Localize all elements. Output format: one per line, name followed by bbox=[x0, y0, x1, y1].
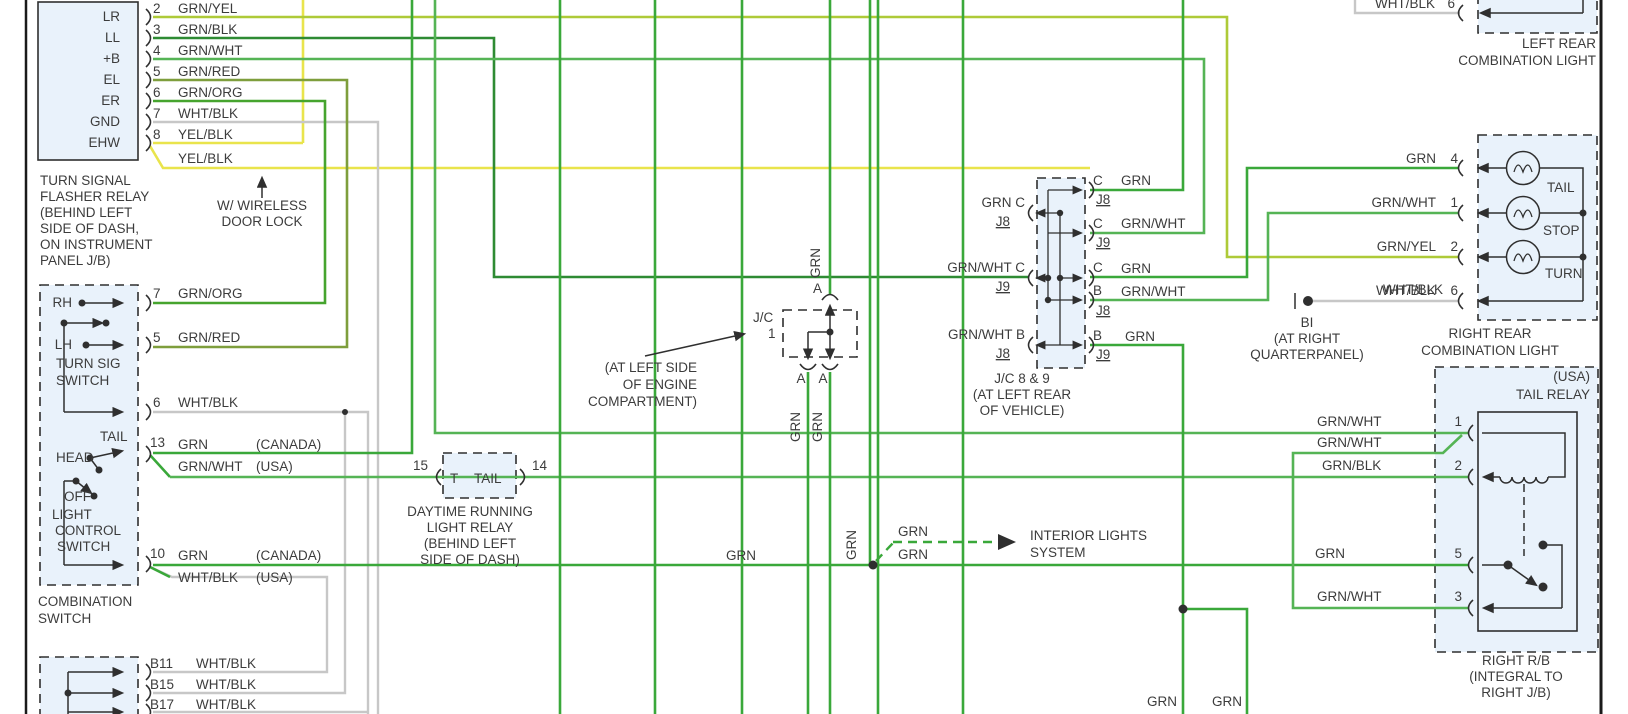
wire-grn-yel-turn bbox=[153, 17, 1458, 257]
junction-dot bbox=[1179, 605, 1188, 614]
daytime-running-light-relay-label: 14 bbox=[532, 458, 548, 473]
daytime-running-light-relay-label: LIGHT RELAY bbox=[427, 520, 514, 535]
combination-switch-label: COMBINATION bbox=[38, 594, 132, 609]
jc1-pointer-arrow-icon bbox=[645, 334, 744, 356]
interior-lights-system-label: GRN bbox=[1212, 694, 1242, 709]
turn-signal-flasher-relay-label: GRN/ORG bbox=[178, 85, 243, 100]
turn-signal-flasher-relay-label: ON INSTRUMENT bbox=[40, 237, 153, 252]
right-rear-combination-light-label: 6 bbox=[1450, 283, 1458, 298]
turn-signal-flasher-relay-label: GND bbox=[90, 114, 120, 129]
turn-signal-flasher-relay-label: YEL/BLK bbox=[178, 127, 233, 142]
turn-signal-flasher-relay-label: GRN/YEL bbox=[178, 1, 238, 16]
tail-relay-label: RIGHT R/B bbox=[1482, 653, 1550, 668]
right-rear-combination-light-label: 1 bbox=[1450, 195, 1458, 210]
instrument-panel-connector-label: WHT/BLK bbox=[196, 697, 256, 712]
combination-switch-label: SWITCH bbox=[38, 611, 91, 626]
daytime-running-light-relay-label: 15 bbox=[413, 458, 428, 473]
combination-switch-label: CONTROL bbox=[55, 523, 121, 538]
junction-connector-1-label: 1 bbox=[768, 326, 776, 341]
turn-signal-flasher-relay-label: YEL/BLK bbox=[178, 151, 233, 166]
turn-signal-flasher-relay-label: LR bbox=[103, 9, 121, 24]
junction-connector-1-label: OF ENGINE bbox=[623, 377, 697, 392]
turn-signal-flasher-relay-label: TURN SIGNAL bbox=[40, 173, 131, 188]
right-rear-combination-light-label: WHT/BLK bbox=[1376, 283, 1436, 298]
right-rear-combination-light-label: RIGHT REAR bbox=[1448, 326, 1531, 341]
tail-relay-label: 3 bbox=[1454, 589, 1462, 604]
tail-relay-label: 5 bbox=[1454, 546, 1462, 561]
junction-connector-1-label: GRN bbox=[810, 412, 825, 442]
daytime-running-light-relay-label: DAYTIME RUNNING bbox=[407, 504, 533, 519]
junction-connector-1-label: GRN bbox=[788, 412, 803, 442]
wire-yel-blk bbox=[150, 0, 1090, 168]
junction-dot bbox=[342, 409, 348, 415]
junction-connector-8-9-label: GRN/WHT B bbox=[948, 327, 1025, 342]
junction-connector-1-label: J/C bbox=[753, 310, 774, 325]
turn-signal-flasher-relay-label: 7 bbox=[153, 106, 161, 121]
turn-signal-flasher-relay-label: 2 bbox=[153, 1, 161, 16]
junction-connector-8-9-label: GRN/WHT C bbox=[947, 260, 1025, 275]
combination-switch-label: 6 bbox=[153, 395, 161, 410]
junction-connector-8-9-label: GRN/WHT bbox=[1121, 216, 1186, 231]
junction-connector-1-label: GRN bbox=[808, 248, 823, 278]
combination-switch-label: SWITCH bbox=[57, 539, 110, 554]
right-rear-combination-light-label: GRN/WHT bbox=[1372, 195, 1437, 210]
tail-relay-label: GRN/WHT bbox=[1317, 589, 1382, 604]
ground-bi-label: BI bbox=[1301, 315, 1314, 330]
interior-lights-system-label: SYSTEM bbox=[1030, 545, 1086, 560]
left-rear-combination-light-label: 6 bbox=[1447, 0, 1455, 11]
turn-signal-flasher-relay-label: 6 bbox=[153, 85, 161, 100]
combination-switch-label: (CANADA) bbox=[256, 437, 321, 452]
instrument-panel-connector-label: B11 bbox=[150, 656, 173, 671]
wiring-diagram: LRLL+BELERGNDEHW2GRN/YEL3GRN/BLK4GRN/WHT… bbox=[0, 0, 1628, 714]
wire-grn-wht-relay-pin1 bbox=[435, 0, 1468, 433]
junction-dot bbox=[869, 561, 878, 570]
combination-switch-label: GRN bbox=[178, 437, 208, 452]
junction-connector-8-9-label: J9 bbox=[1096, 235, 1110, 250]
combination-switch-label: GRN bbox=[178, 548, 208, 563]
combination-switch-label: WHT/BLK bbox=[178, 570, 238, 585]
combination-switch-label: OFF bbox=[64, 489, 91, 504]
junction-connector-8-9-label: GRN/WHT bbox=[1121, 284, 1186, 299]
right-rear-combination-light-label: GRN/YEL bbox=[1377, 239, 1437, 254]
junction-connector-8-9-label: GRN bbox=[1125, 329, 1155, 344]
interior-lights-system-label: INTERIOR LIGHTS bbox=[1030, 528, 1147, 543]
right-rear-combination-light-label: 2 bbox=[1450, 239, 1458, 254]
daytime-running-light-relay-label: TAIL bbox=[474, 471, 502, 486]
interior-lights-system-label: GRN bbox=[844, 530, 859, 560]
interior-lights-system-label: GRN bbox=[898, 547, 928, 562]
left-rear-combination-light-label: LEFT REAR bbox=[1522, 36, 1596, 51]
combination-switch-label: 10 bbox=[150, 546, 165, 561]
turn-signal-flasher-relay-label: (BEHIND LEFT bbox=[40, 205, 132, 220]
instrument-panel-connector-label: WHT/BLK bbox=[196, 656, 256, 671]
junction-connector-8-9-label: J8 bbox=[996, 346, 1010, 361]
junction-connector-8-9-label: B bbox=[1093, 328, 1102, 343]
junction-connector-1-label: (AT LEFT SIDE bbox=[605, 360, 697, 375]
junction-connector-8-9-label: J8 bbox=[996, 214, 1010, 229]
right-rear-combination-light-label: TURN bbox=[1545, 266, 1583, 281]
junction-connector-8-9-label: J8 bbox=[1096, 192, 1110, 207]
tail-relay-label: GRN/BLK bbox=[1322, 458, 1381, 473]
right-rear-combination-light-label: 4 bbox=[1450, 151, 1458, 166]
junction-connector-8-9-box bbox=[1037, 178, 1085, 368]
junction-connector-1-label: COMPARTMENT) bbox=[588, 394, 697, 409]
combination-switch-label: LIGHT bbox=[52, 507, 92, 522]
tail-relay-label: 1 bbox=[1454, 414, 1462, 429]
junction-connector-8-9-label: J9 bbox=[1096, 347, 1110, 362]
tail-relay-label: GRN/WHT bbox=[1317, 435, 1382, 450]
turn-signal-flasher-relay-label: W/ WIRELESS bbox=[217, 198, 307, 213]
turn-signal-flasher-relay-label: GRN/RED bbox=[178, 64, 241, 79]
combination-switch-label: 7 bbox=[153, 286, 161, 301]
tail-relay-label: (USA) bbox=[1553, 369, 1590, 384]
combination-switch-label: RH bbox=[53, 295, 73, 310]
turn-signal-flasher-relay-label: +B bbox=[103, 51, 120, 66]
turn-signal-flasher-relay-label: GRN/BLK bbox=[178, 22, 237, 37]
instrument-panel-connector-box bbox=[40, 657, 138, 714]
tail-relay-label: 2 bbox=[1454, 458, 1462, 473]
tail-relay-label: RIGHT J/B) bbox=[1481, 685, 1551, 700]
turn-signal-flasher-relay-label: LL bbox=[105, 30, 121, 45]
tail-relay-label: TAIL RELAY bbox=[1516, 387, 1590, 402]
right-rear-combination-light-label: TAIL bbox=[1547, 180, 1575, 195]
turn-signal-flasher-relay-label: EHW bbox=[89, 135, 121, 150]
turn-signal-flasher-relay-label: WHT/BLK bbox=[178, 106, 238, 121]
wire-grn-blk bbox=[153, 38, 1028, 277]
combination-switch-label: 5 bbox=[153, 330, 161, 345]
junction-connector-8-9-label: C bbox=[1093, 173, 1103, 188]
wire-grn-verticals bbox=[560, 0, 963, 714]
ground-bi-label: QUARTERPANEL) bbox=[1250, 347, 1364, 362]
interior-lights-system-label: GRN bbox=[726, 548, 756, 563]
instrument-panel-connector-label: B15 bbox=[150, 677, 174, 692]
junction-connector-1-label: A bbox=[796, 371, 805, 386]
turn-signal-flasher-relay-label: DOOR LOCK bbox=[221, 214, 302, 229]
tail-relay-label: GRN bbox=[1315, 546, 1345, 561]
junction-connector-8-9-label: C bbox=[1093, 216, 1103, 231]
turn-signal-flasher-relay-label: 4 bbox=[153, 43, 161, 58]
combination-switch-label: (CANADA) bbox=[256, 548, 321, 563]
combination-switch-label: HEAD bbox=[56, 450, 94, 465]
instrument-panel-connector-label: B17 bbox=[150, 697, 174, 712]
combination-switch-label: 13 bbox=[150, 435, 165, 450]
junction-connector-8-9-label: GRN C bbox=[982, 195, 1026, 210]
turn-signal-flasher-relay-label: GRN/WHT bbox=[178, 43, 243, 58]
left-rear-combination-light-label: WHT/BLK bbox=[1375, 0, 1435, 11]
junction-connector-8-9-label: B bbox=[1093, 283, 1102, 298]
right-rear-combination-light-label: GRN bbox=[1406, 151, 1436, 166]
turn-signal-flasher-relay-label: SIDE OF DASH, bbox=[40, 221, 139, 236]
combination-switch-label: GRN/WHT bbox=[178, 459, 243, 474]
junction-connector-1-box bbox=[783, 310, 857, 357]
combination-switch-label: (USA) bbox=[256, 570, 293, 585]
interior-lights-system-label: GRN bbox=[1147, 694, 1177, 709]
junction-connector-8-9-label: OF VEHICLE) bbox=[980, 403, 1065, 418]
tail-relay-label: (INTEGRAL TO bbox=[1469, 669, 1563, 684]
junction-connector-8-9-label: C bbox=[1093, 260, 1103, 275]
junction-connector-1-label: A bbox=[818, 371, 827, 386]
daytime-running-light-relay-label: (BEHIND LEFT bbox=[424, 536, 516, 551]
left-rear-combination-light-label: COMBINATION LIGHT bbox=[1458, 53, 1596, 68]
combination-switch-label: LH bbox=[55, 337, 72, 352]
tail-relay-label: GRN/WHT bbox=[1317, 414, 1382, 429]
junction-connector-8-9-label: GRN bbox=[1121, 173, 1151, 188]
combination-switch-label: SWITCH bbox=[56, 373, 109, 388]
junction-connector-8-9-label: J/C 8 & 9 bbox=[994, 371, 1050, 386]
turn-signal-flasher-relay-label: ER bbox=[101, 93, 120, 108]
daytime-running-light-relay-label: SIDE OF DASH) bbox=[420, 552, 520, 567]
junction-connector-8-9-label: (AT LEFT REAR bbox=[973, 387, 1072, 402]
daytime-running-light-relay-label: T bbox=[450, 471, 458, 486]
right-rear-combination-light-label: COMBINATION LIGHT bbox=[1421, 343, 1559, 358]
wire-grn-interior-dashed bbox=[876, 542, 998, 561]
ground-bi-label: (AT RIGHT bbox=[1274, 331, 1340, 346]
turn-signal-flasher-relay-label: 3 bbox=[153, 22, 161, 37]
combination-switch-label: (USA) bbox=[256, 459, 293, 474]
turn-signal-flasher-relay-label: PANEL J/B) bbox=[40, 253, 111, 268]
left-rear-combination-light-box bbox=[1478, 0, 1597, 33]
junction-connector-1-label: A bbox=[813, 281, 822, 296]
combination-switch-label: TURN SIG bbox=[56, 356, 121, 371]
combination-switch-label: WHT/BLK bbox=[178, 395, 238, 410]
junction-connector-8-9-label: J9 bbox=[996, 279, 1010, 294]
turn-signal-flasher-relay-label: FLASHER RELAY bbox=[40, 189, 149, 204]
junction-connector-8-9-label: J8 bbox=[1096, 303, 1110, 318]
turn-signal-flasher-relay-label: 5 bbox=[153, 64, 161, 79]
turn-signal-flasher-relay-label: 8 bbox=[153, 127, 161, 142]
turn-signal-flasher-relay-label: EL bbox=[103, 72, 120, 87]
combination-switch-label: GRN/RED bbox=[178, 330, 241, 345]
interior-lights-system-label: GRN bbox=[898, 524, 928, 539]
combination-switch-label: TAIL bbox=[100, 429, 128, 444]
wire-wht-blk-pin6 bbox=[153, 412, 368, 714]
instrument-panel-connector-label: WHT/BLK bbox=[196, 677, 256, 692]
interior-lights-arrow-icon bbox=[998, 534, 1016, 550]
wire-grn-jc-up bbox=[1090, 0, 1183, 190]
labels-layer: LRLL+BELERGNDEHW2GRN/YEL3GRN/BLK4GRN/WHT… bbox=[38, 0, 1596, 712]
right-rear-combination-light-label: STOP bbox=[1543, 223, 1580, 238]
combination-switch-label: GRN/ORG bbox=[178, 286, 243, 301]
wiring-diagram-page: LRLL+BELERGNDEHW2GRN/YEL3GRN/BLK4GRN/WHT… bbox=[0, 0, 1628, 714]
junction-connector-8-9-label: GRN bbox=[1121, 261, 1151, 276]
